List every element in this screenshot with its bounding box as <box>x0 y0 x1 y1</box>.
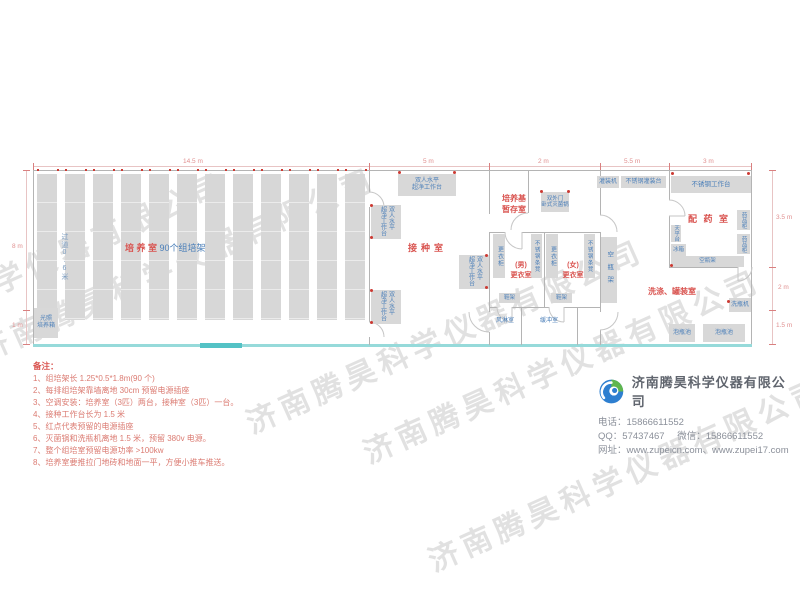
laminar-flow-bench: 双人水平 超净工作台 <box>459 255 489 289</box>
wechat-number: 15866611552 <box>706 431 763 442</box>
dim-tick <box>23 310 30 311</box>
dim-tick <box>600 163 601 170</box>
dim-tick <box>669 163 670 170</box>
dimension-label: 1 m <box>12 322 23 329</box>
sterilizer-label: 卧式灭菌锅 <box>541 202 569 208</box>
note-item: 8、培养室要推拉门地砖和地面一平，方便小推车推送。 <box>33 457 353 469</box>
bench-label: 超净工作台 <box>379 291 386 324</box>
culture-rack-row <box>345 174 365 320</box>
dimension-label: 1.5 m <box>776 322 792 329</box>
power-outlet-strip <box>37 169 367 171</box>
power-outlet-dot <box>670 264 673 267</box>
note-item: 4、接种工作台长为 1.5 米 <box>33 409 353 421</box>
power-outlet-dot <box>370 321 373 324</box>
power-outlet-dot <box>370 289 373 292</box>
empty-bottle-rack: 空瓶架 <box>671 256 744 267</box>
dimension-line-left <box>26 170 27 345</box>
culture-rack-row <box>261 174 281 320</box>
power-outlet-dot <box>727 300 730 303</box>
empty-bottle-rack: 空瓶架 <box>601 237 617 303</box>
inoculation-room-label: 接种室 <box>408 241 447 254</box>
female-changing-room-label: (女) 更衣室 <box>554 261 592 281</box>
air-shower-room-label: 风淋室 <box>489 315 521 324</box>
culture-rack-row <box>37 174 57 320</box>
phone-number: 15866611552 <box>627 417 684 428</box>
dim-tick <box>769 344 776 345</box>
laminar-flow-bench: 双人水平 超净工作台 <box>398 174 456 196</box>
note-item: 6、灭菌锅和洗瓶机离地 1.5 米，预留 380v 电源。 <box>33 433 353 445</box>
light-incubator-label: 光照 <box>40 316 52 323</box>
male-changing-room-label: (男) 更衣室 <box>502 261 540 281</box>
company-block: 济南腾昊科学仪器有限公司 电话：15866611552 QQ：57437467 … <box>598 372 798 458</box>
laminar-flow-bench: 双人水平 超净工作台 <box>371 205 401 239</box>
power-outlet-dot <box>453 171 456 174</box>
filling-machine: 灌装机 <box>597 176 619 188</box>
power-outlet-dot <box>485 254 488 257</box>
bottle-washer: 洗瓶机 <box>729 298 751 312</box>
shoe-rack: 鞋架 <box>551 293 572 303</box>
female-label: 更衣室 <box>554 271 592 281</box>
fridge: 冰箱 <box>671 244 686 256</box>
company-name: 济南腾昊科学仪器有限公司 <box>632 372 798 410</box>
culture-rack-row <box>317 174 337 320</box>
light-incubator-label: 培养箱 <box>37 323 55 330</box>
bench-label: 双人水平 <box>387 206 394 239</box>
culture-rack-row <box>233 174 253 320</box>
dim-tick <box>33 163 34 170</box>
floor-plan-screenshot: { "watermark": "济南腾昊科学仪器有限公司", "dims": {… <box>0 0 800 600</box>
dim-tick <box>769 170 776 171</box>
female-label: (女) <box>554 261 592 271</box>
wechat-label: 微信： <box>677 431 706 442</box>
male-label: (男) <box>502 261 540 271</box>
bench-label: 双人水平 <box>475 256 482 289</box>
shoe-rack: 鞋架 <box>499 293 520 303</box>
company-logo-icon <box>598 378 625 405</box>
soak-pool: 泡瓶池 <box>703 324 745 342</box>
qq-wechat-line: QQ：57437467 微信：15866611552 <box>598 430 798 444</box>
bench-label: 双人水平 <box>387 291 394 324</box>
note-item: 2、每排组培架靠墙离地 30cm 预留电源插座 <box>33 385 353 397</box>
dimension-label: 5.5 m <box>624 158 640 165</box>
dim-tick <box>751 163 752 170</box>
note-item: 3、空调安装：培养室（3匹）两台，接种室（3匹）一台。 <box>33 397 353 409</box>
culture-room-label: 培 养 室 90个组培架 <box>125 241 206 254</box>
dispensary-room-label: 配 药 室 <box>688 212 730 225</box>
power-outlet-dot <box>540 190 543 193</box>
website-label: 网址： <box>598 445 627 456</box>
qq-label: QQ： <box>598 431 622 442</box>
note-item: 5、红点代表预留的电源插座 <box>33 421 353 433</box>
bench-label: 超净工作台 <box>467 256 474 289</box>
phone-label: 电话： <box>598 417 627 428</box>
dim-tick <box>489 163 490 170</box>
light-incubator: 光照 培养箱 <box>34 308 58 338</box>
website-urls: www.zupeicn.com、www.zupei17.com <box>627 445 789 456</box>
culture-rack-row <box>289 174 309 320</box>
balance-table: 天平台 <box>671 225 681 242</box>
buffer-room-label: 缓冲室 <box>521 315 577 324</box>
note-item: 7、整个组培室预留电源功率 >100kw <box>33 445 353 457</box>
sterilizer: 双外门 卧式灭菌锅 <box>541 192 569 212</box>
aisle-label: 过道0.6米 <box>59 233 69 281</box>
culture-rack-row <box>93 174 113 320</box>
dim-tick <box>23 170 30 171</box>
bench-label: 超净工作台 <box>412 185 442 192</box>
notes-block: 备注： 1、组培架长 1.25*0.5*1.8m(90 个) 2、每排组培架靠墙… <box>33 360 353 469</box>
culture-room-name: 培 养 室 <box>125 243 157 253</box>
website-line: 网址：www.zupeicn.com、www.zupei17.com <box>598 444 798 458</box>
medicine-cabinet: 药品柜 <box>737 234 750 254</box>
dimension-label: 2 m <box>778 284 789 291</box>
culture-rack-count: 90个组培架 <box>160 243 206 253</box>
dim-tick <box>769 267 776 268</box>
notes-title: 备注： <box>33 360 353 373</box>
soak-pool: 泡瓶池 <box>669 324 695 342</box>
company-header: 济南腾昊科学仪器有限公司 <box>598 372 798 410</box>
medicine-cabinet: 药品柜 <box>737 210 750 230</box>
power-outlet-dot <box>370 236 373 239</box>
washing-room-label: 洗涤、罐装室 <box>648 286 696 297</box>
dimension-label: 3.5 m <box>776 214 792 221</box>
dimension-label: 3 m <box>703 158 714 165</box>
qq-number: 57437467 <box>622 431 664 442</box>
dimension-label: 14.5 m <box>183 158 203 165</box>
male-label: 更衣室 <box>502 271 540 281</box>
dimension-line-right <box>772 170 773 345</box>
medium-storage-line: 暂存室 <box>497 204 531 215</box>
dimension-label: 5 m <box>423 158 434 165</box>
power-outlet-dot <box>370 204 373 207</box>
dimension-line-top <box>33 166 752 167</box>
dim-tick <box>23 344 30 345</box>
power-outlet-dot <box>747 172 750 175</box>
dimension-label: 2 m <box>538 158 549 165</box>
bench-label: 双人水平 <box>415 178 439 185</box>
dim-tick <box>369 163 370 170</box>
power-outlet-dot <box>398 171 401 174</box>
dimension-label: 8 m <box>12 243 23 250</box>
medium-storage-label: 培养基 暂存室 <box>497 193 531 215</box>
medium-storage-line: 培养基 <box>497 193 531 204</box>
power-outlet-dot <box>485 286 488 289</box>
power-outlet-dot <box>567 190 570 193</box>
bench-label: 超净工作台 <box>379 206 386 239</box>
laminar-flow-bench: 双人水平 超净工作台 <box>371 290 401 324</box>
filling-table: 不锈钢灌装台 <box>621 176 666 188</box>
dim-tick <box>769 310 776 311</box>
culture-rack-row <box>205 174 225 320</box>
phone-line: 电话：15866611552 <box>598 416 798 430</box>
power-outlet-dot <box>671 172 674 175</box>
work-table: 不锈钢工作台 <box>671 176 751 193</box>
note-item: 1、组培架长 1.25*0.5*1.8m(90 个) <box>33 373 353 385</box>
